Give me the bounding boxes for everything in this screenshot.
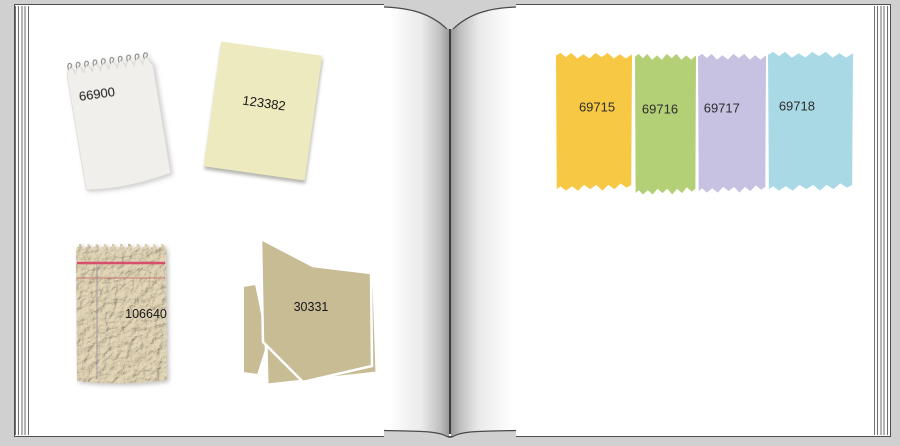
spine-bottom-curve bbox=[384, 409, 516, 439]
strip-number: 69717 bbox=[704, 101, 740, 116]
spine-center-line bbox=[449, 11, 451, 434]
torn-strip-purple[interactable]: 69717 bbox=[698, 51, 766, 194]
left-page-edges bbox=[15, 6, 30, 435]
notepad-paper bbox=[66, 56, 171, 192]
cream-paper[interactable]: 123382 bbox=[204, 42, 323, 181]
torn-strip-yellow[interactable]: 69715 bbox=[556, 50, 632, 192]
strip-number: 69716 bbox=[642, 102, 678, 117]
tan-notepad-number: 106640 bbox=[123, 307, 169, 321]
cream-paper-number: 123382 bbox=[213, 89, 316, 118]
spine-shade-left bbox=[389, 9, 449, 436]
white-notepad[interactable]: 66900 bbox=[62, 47, 172, 196]
torn-strip-green[interactable]: 69716 bbox=[635, 51, 696, 196]
paper-stack-number: 30331 bbox=[281, 300, 341, 314]
strip-number: 69715 bbox=[579, 99, 615, 114]
spine-top-curve bbox=[384, 4, 516, 32]
torn-strip-blue[interactable]: 69718 bbox=[768, 49, 853, 192]
white-notepad-shape bbox=[62, 47, 172, 196]
right-page-edges bbox=[874, 6, 890, 435]
tan-notepad[interactable]: 106640 bbox=[73, 237, 169, 385]
paper-stack[interactable]: 30331 bbox=[237, 230, 385, 395]
book-scene: 66900 123382 bbox=[0, 0, 900, 446]
spine-shade-right bbox=[451, 9, 513, 436]
strip-number: 69718 bbox=[779, 99, 815, 114]
open-book: 66900 123382 bbox=[14, 4, 891, 437]
